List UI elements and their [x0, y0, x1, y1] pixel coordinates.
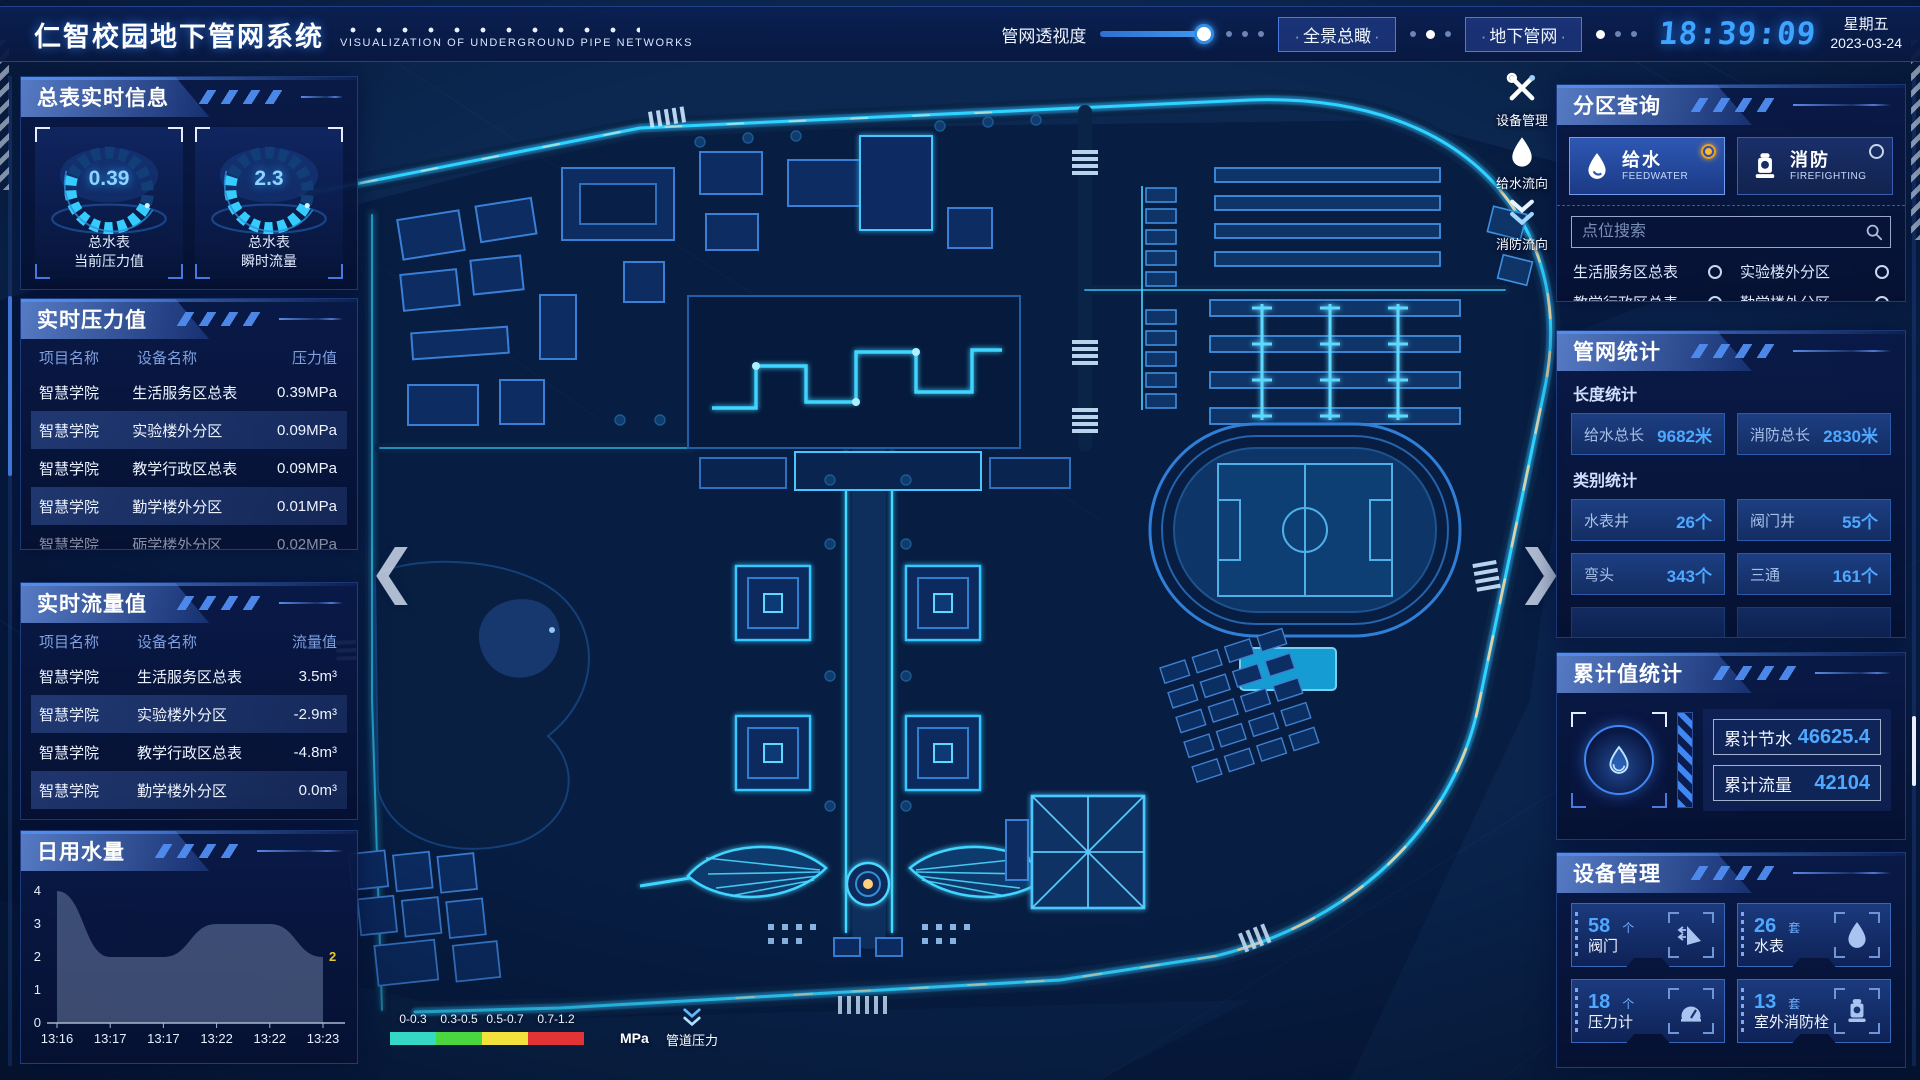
table-row[interactable]: 智慧学院勤学楼外分区0.01MPa	[31, 487, 347, 525]
svg-text:13:22: 13:22	[254, 1031, 287, 1046]
device-cell: 生活服务区总表	[137, 666, 289, 687]
table-header: 项目名称设备名称压力值	[31, 341, 347, 373]
value-cell: 0.09MPa	[277, 460, 347, 477]
device-manage-tool[interactable]: 设备管理	[1496, 70, 1548, 129]
value-cell: 0.09MPa	[277, 422, 347, 439]
totals-panel: 累计值统计 累计节水46625.4 累计流量42104	[1556, 652, 1906, 840]
svg-text:4: 4	[34, 883, 41, 898]
title-decoration: VISUALIZATION OF UNDERGROUND PIPE NETWOR…	[340, 19, 693, 49]
header-line	[279, 318, 343, 320]
table-row[interactable]: 智慧学院生活服务区总表0.39MPa	[31, 373, 347, 411]
panel-title: 设备管理	[1557, 858, 1661, 888]
device-cell: 教学行政区总表	[137, 742, 289, 763]
map-tool-stack: 设备管理 给水流向 消防流向	[1484, 70, 1560, 253]
header-line	[1793, 350, 1891, 352]
double-chevron-down-icon	[681, 1008, 703, 1028]
panel-title: 实时流量值	[21, 588, 147, 618]
slashes-decoration	[199, 90, 294, 104]
project-cell: 智慧学院	[31, 534, 132, 551]
slashes-decoration	[177, 596, 272, 610]
search-input[interactable]	[1571, 216, 1891, 248]
slashes-decoration	[155, 844, 250, 858]
pipe-stats-panel: 管网统计 长度统计 给水总长9682米 消防总长2830米 类别统计 水表井26…	[1556, 330, 1906, 638]
value-cell: -2.9m³	[289, 706, 347, 723]
gauge-label: 总水表瞬时流量	[195, 233, 343, 271]
svg-text:2: 2	[34, 949, 41, 964]
mode-radio[interactable]	[1869, 144, 1884, 159]
valve-icon	[1668, 912, 1714, 958]
app-subtitle: VISUALIZATION OF UNDERGROUND PIPE NETWOR…	[340, 37, 693, 49]
svg-text:3: 3	[34, 916, 41, 931]
header-bar: 仁智校园地下管网系统 VISUALIZATION OF UNDERGROUND …	[0, 6, 1920, 62]
dots-separator	[1596, 30, 1637, 39]
point-radio[interactable]	[1875, 265, 1889, 279]
header-line	[1815, 672, 1891, 674]
left-edge-decoration	[0, 40, 9, 190]
pressure-panel: 实时压力值 项目名称设备名称压力值 智慧学院生活服务区总表0.39MPa 智慧学…	[20, 298, 358, 550]
table-row[interactable]: 智慧学院实验楼外分区-2.9m³	[31, 695, 347, 733]
length-stats-title: 长度统计	[1557, 371, 1905, 411]
scrollbar-thumb[interactable]	[8, 296, 12, 476]
project-cell: 智慧学院	[31, 382, 132, 403]
svg-text:13:17: 13:17	[94, 1031, 127, 1046]
underground-pipes-button[interactable]: 地下管网	[1465, 17, 1582, 52]
panel-title: 总表实时信息	[21, 82, 169, 112]
table-row[interactable]: 智慧学院砺学楼外分区2.3m³	[31, 809, 347, 820]
flow-gauge: 2.3 总水表瞬时流量	[195, 127, 343, 279]
panel-title: 管网统计	[1557, 336, 1661, 366]
stat-box: 弯头343个	[1571, 553, 1725, 595]
legend-segment	[482, 1032, 528, 1045]
dashboard-stage: 仁智校园地下管网系统 VISUALIZATION OF UNDERGROUND …	[0, 0, 1920, 1080]
carousel-left-arrow[interactable]: ❮	[368, 542, 417, 600]
dots-row	[340, 27, 640, 33]
valves-card[interactable]: 58个阀门	[1571, 903, 1725, 967]
svg-text:0: 0	[34, 1015, 41, 1030]
table-row[interactable]: 智慧学院砺学楼外分区0.02MPa	[31, 525, 347, 550]
slashes-decoration	[1691, 98, 1786, 112]
dots-separator	[1226, 31, 1264, 37]
project-cell: 智慧学院	[31, 818, 137, 821]
device-cell: 砺学楼外分区	[132, 534, 277, 551]
water-saving-icon-box	[1571, 712, 1667, 808]
project-cell: 智慧学院	[31, 458, 132, 479]
slashes-decoration	[1691, 866, 1786, 880]
value-cell: 0.02MPa	[277, 536, 347, 551]
device-cell: 勤学楼外分区	[137, 780, 289, 801]
dots-separator	[1410, 30, 1451, 39]
point-search	[1571, 216, 1891, 248]
value-cell: 2.3m³	[289, 820, 347, 821]
weekday-label: 星期五	[1844, 16, 1889, 35]
header-line	[1793, 872, 1891, 874]
hazard-stripe-divider	[1677, 712, 1693, 808]
project-cell: 智慧学院	[31, 496, 132, 517]
waterdrop-icon	[1507, 135, 1537, 169]
hydrant-icon	[1834, 988, 1880, 1034]
project-cell: 智慧学院	[31, 704, 137, 725]
panel-title: 日用水量	[21, 836, 125, 866]
gauge-value: 2.3	[195, 167, 343, 191]
flow-panel: 实时流量值 项目名称设备名称流量值 智慧学院生活服务区总表3.5m³ 智慧学院实…	[20, 582, 358, 820]
legend-ranges: 0-0.3 0.3-0.5 0.5-0.7 0.7-1.2	[390, 1012, 649, 1026]
overview-button[interactable]: 全景总瞰	[1278, 17, 1395, 52]
stat-box	[1571, 607, 1725, 638]
device-cell: 生活服务区总表	[132, 382, 277, 403]
panel-title: 累计值统计	[1557, 658, 1683, 688]
date-block: 星期五 2023-03-24	[1830, 16, 1902, 52]
legend-segment	[436, 1032, 482, 1045]
scrollbar-thumb[interactable]	[1912, 716, 1916, 786]
panel-title: 分区查询	[1557, 90, 1661, 120]
svg-text:13:22: 13:22	[200, 1031, 233, 1046]
clock-time: 18:39:09	[1657, 16, 1817, 52]
legend-segment	[390, 1032, 436, 1045]
value-cell: -4.8m³	[289, 744, 347, 761]
value-cell: 0.0m³	[289, 782, 347, 799]
svg-text:13:17: 13:17	[147, 1031, 180, 1046]
slashes-decoration	[177, 312, 272, 326]
firefighting-mode-button[interactable]: 消防FIREFIGHTING	[1737, 137, 1893, 195]
hydrant-icon	[1750, 151, 1780, 181]
stat-box: 给水总长9682米	[1571, 413, 1725, 455]
slider-thumb[interactable]	[1194, 24, 1214, 44]
project-cell: 智慧学院	[31, 780, 137, 801]
svg-text:2: 2	[329, 949, 336, 964]
firefighting-flow-tool[interactable]: 消防流向	[1496, 198, 1548, 253]
point-radio[interactable]	[1875, 296, 1889, 303]
pressure-gauges-card[interactable]: 18个压力计	[1571, 979, 1725, 1043]
svg-text:13:16: 13:16	[41, 1031, 74, 1046]
stat-box: 阀门井55个	[1737, 499, 1891, 541]
device-cell: 勤学楼外分区	[132, 496, 277, 517]
project-cell: 智慧学院	[31, 742, 137, 763]
gauge-label: 总水表当前压力值	[35, 233, 183, 271]
app-title: 仁智校园地下管网系统	[34, 15, 324, 54]
category-stats-title: 类别统计	[1557, 457, 1905, 497]
svg-text:13:23: 13:23	[307, 1031, 340, 1046]
legend-segment	[528, 1032, 584, 1045]
point-radio[interactable]	[1708, 265, 1722, 279]
header-line	[1793, 104, 1891, 106]
mode-radio[interactable]	[1701, 144, 1716, 159]
header-line	[279, 602, 343, 604]
pipe-opacity-slider[interactable]	[1100, 31, 1212, 37]
legend-unit: MPa	[620, 1030, 649, 1046]
gauge-value: 0.39	[35, 167, 183, 191]
stat-box: 水表井26个	[1571, 499, 1725, 541]
point-item[interactable]: 实验楼外分区	[1740, 256, 1889, 287]
waterdrop-icon	[1582, 151, 1612, 181]
water-meters-card[interactable]: 26套水表	[1737, 903, 1891, 967]
daily-water-panel: 日用水量 0123413:1613:1713:1713:2213:2213:23…	[20, 830, 358, 1064]
search-icon[interactable]	[1865, 223, 1883, 241]
pipe-opacity-label: 管网透视度	[1001, 22, 1086, 47]
hydrants-card[interactable]: 13套室外消防栓	[1737, 979, 1891, 1043]
total-row: 累计流量42104	[1713, 765, 1881, 801]
table-row[interactable]: 智慧学院教学行政区总表0.09MPa	[31, 449, 347, 487]
device-cell: 实验楼外分区	[132, 420, 277, 441]
stat-box: 三通161个	[1737, 553, 1891, 595]
slashes-decoration	[1691, 344, 1786, 358]
value-cell: 0.01MPa	[277, 498, 347, 515]
value-cell: 3.5m³	[289, 668, 347, 685]
zone-query-panel: 分区查询 给水FEEDWATER 消防FIREFIGHTING	[1556, 84, 1906, 302]
pressure-gauge: 0.39 总水表当前压力值	[35, 127, 183, 279]
flow-down-icon	[1507, 198, 1537, 230]
point-item[interactable]: 教学行政区总表	[1573, 287, 1722, 302]
table-row[interactable]: 智慧学院实验楼外分区0.09MPa	[31, 411, 347, 449]
header-line	[257, 850, 343, 852]
stat-box: 消防总长2830米	[1737, 413, 1891, 455]
meters-panel: 总表实时信息 0.39 总水表当前压力值	[20, 76, 358, 290]
tools-icon	[1504, 70, 1540, 106]
pressure-gauge-icon	[1668, 988, 1714, 1034]
device-cell: 砺学楼外分区	[137, 818, 289, 821]
feedwater-mode-button[interactable]: 给水FEEDWATER	[1569, 137, 1725, 195]
project-cell: 智慧学院	[31, 420, 132, 441]
date-label: 2023-03-24	[1830, 35, 1902, 53]
project-cell: 智慧学院	[31, 666, 137, 687]
right-edge-decoration	[1911, 40, 1920, 240]
table-header: 项目名称设备名称流量值	[31, 625, 347, 657]
water-meter-icon	[1834, 912, 1880, 958]
point-item[interactable]: 勤学楼外分区	[1740, 287, 1889, 302]
feedwater-flow-tool[interactable]: 给水流向	[1496, 135, 1548, 192]
waterdrop-icon	[1584, 725, 1654, 795]
table-row[interactable]: 智慧学院生活服务区总表3.5m³	[31, 657, 347, 695]
header-line	[301, 96, 343, 98]
pipe-pressure-toggle[interactable]: 管道压力	[666, 1008, 718, 1049]
daily-water-chart: 0123413:1613:1713:1713:2213:2213:232	[23, 875, 353, 1055]
table-row[interactable]: 智慧学院勤学楼外分区0.0m³	[31, 771, 347, 809]
device-cell: 实验楼外分区	[137, 704, 289, 725]
value-cell: 0.39MPa	[277, 384, 347, 401]
total-row: 累计节水46625.4	[1713, 719, 1881, 755]
left-scrollbar[interactable]	[8, 76, 12, 1066]
stat-box	[1737, 607, 1891, 638]
panel-title: 实时压力值	[21, 304, 147, 334]
pressure-legend: 0-0.3 0.3-0.5 0.5-0.7 0.7-1.2 MPa	[390, 1012, 649, 1046]
svg-text:1: 1	[34, 982, 41, 997]
device-manage-panel: 设备管理 58个阀门 26套水表 18个压力计 13套	[1556, 852, 1906, 1068]
device-cell: 教学行政区总表	[132, 458, 277, 479]
point-item[interactable]: 生活服务区总表	[1573, 256, 1722, 287]
legend-colorbar	[390, 1032, 584, 1045]
point-radio[interactable]	[1708, 296, 1722, 303]
slashes-decoration	[1713, 666, 1808, 680]
table-row[interactable]: 智慧学院教学行政区总表-4.8m³	[31, 733, 347, 771]
